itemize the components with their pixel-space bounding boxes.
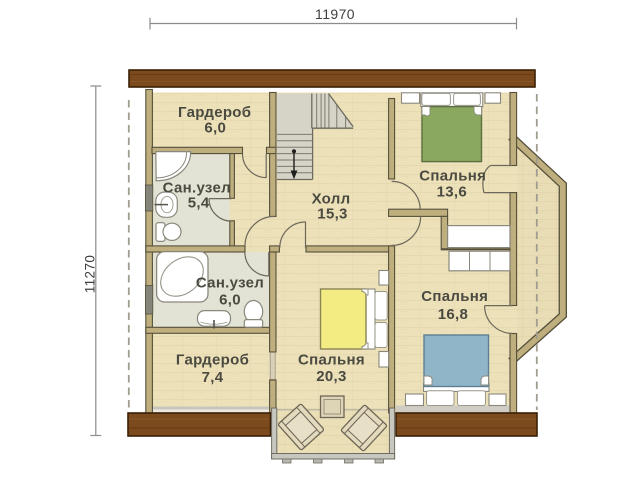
svg-text:11270: 11270 <box>83 255 98 294</box>
svg-text:Гардероб: Гардероб <box>176 352 249 369</box>
svg-text:7,4: 7,4 <box>202 369 224 386</box>
svg-text:Гардероб: Гардероб <box>178 104 251 121</box>
svg-text:Спальня: Спальня <box>421 288 488 305</box>
svg-text:5,4: 5,4 <box>188 195 210 212</box>
svg-text:16,8: 16,8 <box>438 306 468 323</box>
svg-text:13,6: 13,6 <box>437 184 467 201</box>
svg-text:20,3: 20,3 <box>316 368 346 385</box>
svg-text:6,0: 6,0 <box>219 292 241 309</box>
svg-text:Спальня: Спальня <box>419 168 486 185</box>
svg-text:Сан.узел: Сан.узел <box>196 275 264 292</box>
svg-text:6,0: 6,0 <box>204 120 226 137</box>
svg-text:11970: 11970 <box>315 6 355 22</box>
svg-text:15,3: 15,3 <box>317 206 347 223</box>
svg-text:Спальня: Спальня <box>298 352 365 369</box>
